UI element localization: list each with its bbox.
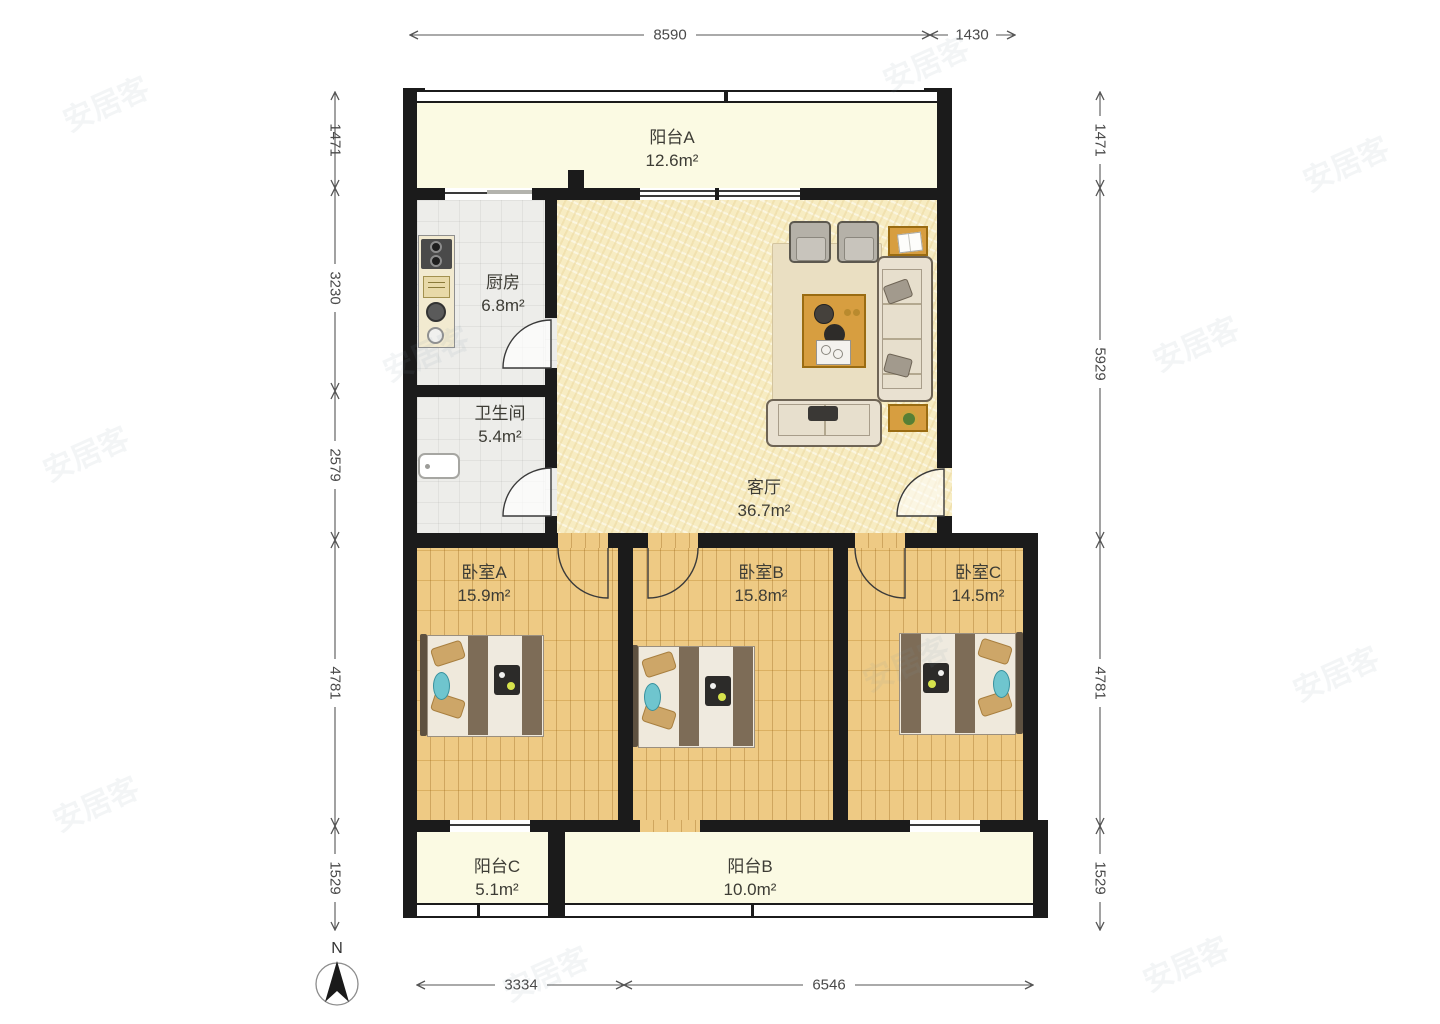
room-name: 阳台B <box>727 857 772 876</box>
side-table <box>888 226 928 256</box>
compass-circle <box>316 963 358 1005</box>
vase <box>814 304 834 324</box>
tray <box>808 406 838 421</box>
watermark: 安居客 <box>45 764 145 841</box>
wall-segment <box>1033 820 1048 918</box>
bedroom-c-door-threshold <box>855 533 905 548</box>
wall-segment <box>698 533 855 548</box>
armchair <box>837 221 879 263</box>
tea-tray <box>816 340 851 365</box>
wall-segment <box>700 820 910 832</box>
balcony-b-window <box>565 903 1033 918</box>
coffee-table <box>802 294 866 368</box>
cutting-board <box>423 276 450 298</box>
floor-plan: 阳台A 12.6m² 厨房 6.8m² 卫生间 5.4m² 客厅 36.7m² … <box>0 0 1440 1024</box>
bed-tray <box>494 665 520 695</box>
kitchen-window <box>445 192 487 194</box>
dimension-label: 1471 <box>327 123 344 156</box>
bathtub <box>418 453 460 479</box>
wall-segment <box>545 368 557 468</box>
wall-segment <box>937 88 952 468</box>
north-label: N <box>331 940 343 957</box>
dimension-label: 3230 <box>327 271 344 304</box>
bathroom-door-threshold <box>545 468 557 516</box>
bed-bedroom-a <box>420 632 545 738</box>
wall-segment <box>417 385 557 397</box>
watermark: 安居客 <box>1135 924 1235 1001</box>
wall-segment <box>905 533 1038 548</box>
wall-segment <box>403 533 558 548</box>
balcony-a-window <box>417 90 937 103</box>
window-mullion <box>715 188 719 200</box>
watermark: 安居客 <box>495 934 595 1011</box>
room-label-living: 客厅 36.7m² <box>738 476 791 522</box>
dimension-label: 1529 <box>327 861 344 894</box>
room-label-balcony-c: 阳台C 5.1m² <box>474 855 520 901</box>
room-label-bedroom-b: 卧室B 15.8m² <box>735 561 788 607</box>
bed-tray <box>705 676 731 706</box>
room-label-balcony-a: 阳台A 12.6m² <box>646 126 699 172</box>
north-arrow-icon <box>325 961 349 1002</box>
dimension-label: 1471 <box>1092 123 1109 156</box>
book <box>897 232 923 254</box>
accent-pillow <box>993 670 1010 698</box>
wall-segment <box>980 820 1038 832</box>
dimension-label: 4781 <box>1092 666 1109 699</box>
side-table <box>888 404 928 432</box>
room-area: 6.8m² <box>481 296 524 315</box>
wall-segment <box>530 820 640 832</box>
room-name: 卧室B <box>738 563 783 582</box>
dimension-label: 5929 <box>1092 347 1109 380</box>
room-area: 12.6m² <box>646 151 699 170</box>
bedroom-a-balcony-window <box>450 824 530 826</box>
window-mullion <box>477 903 480 918</box>
room-label-bedroom-c: 卧室C 14.5m² <box>952 561 1005 607</box>
living-balcony-window <box>640 195 800 197</box>
wall-segment <box>568 170 584 200</box>
room-area: 5.4m² <box>478 427 521 446</box>
sofa <box>877 256 933 402</box>
living-balcony-window <box>640 190 800 192</box>
room-name: 阳台C <box>474 857 520 876</box>
bedroom-a-door-threshold <box>558 533 608 548</box>
balcony-b-floor <box>565 832 1033 903</box>
wall-segment <box>532 188 640 200</box>
dimension-label: 4781 <box>327 666 344 699</box>
parapet <box>487 190 532 194</box>
dimension-label: 1529 <box>1092 861 1109 894</box>
dimension-label: 6546 <box>812 977 845 994</box>
watermark: 安居客 <box>35 414 135 491</box>
room-area: 15.8m² <box>735 586 788 605</box>
armchair <box>789 221 831 263</box>
window-mullion <box>751 903 754 918</box>
room-area: 5.1m² <box>475 880 518 899</box>
bed-bedroom-b <box>631 643 756 749</box>
watermark: 安居客 <box>1295 124 1395 201</box>
wall-segment <box>833 533 848 832</box>
potted-plant <box>900 410 918 428</box>
window-mullion <box>724 90 728 103</box>
accent-pillow <box>433 672 450 700</box>
wall-segment <box>800 188 952 200</box>
balcony-c-window <box>417 903 548 918</box>
watermark: 安居客 <box>55 64 155 141</box>
bedroom-c-balcony-window <box>910 824 980 826</box>
room-label-bathroom: 卫生间 5.4m² <box>475 402 526 448</box>
kitchen-door-threshold <box>545 318 557 368</box>
wall-segment <box>545 200 557 318</box>
room-name: 卧室A <box>461 563 506 582</box>
wall-segment <box>403 88 417 918</box>
bedroom-b-door-threshold <box>648 533 698 548</box>
room-name: 厨房 <box>486 273 520 292</box>
wall-segment <box>403 188 445 200</box>
dimension-label: 2579 <box>327 448 344 481</box>
watermark: 安居客 <box>1145 304 1245 381</box>
room-name: 阳台A <box>649 128 694 147</box>
room-label-kitchen: 厨房 6.8m² <box>481 271 524 317</box>
watermark: 安居客 <box>1285 634 1385 711</box>
wall-segment <box>1023 533 1038 832</box>
room-name: 客厅 <box>747 478 781 497</box>
wall-segment <box>618 533 633 832</box>
entry-door-threshold <box>937 468 952 516</box>
wall-segment <box>403 820 450 832</box>
room-area: 15.9m² <box>458 586 511 605</box>
wall-segment <box>548 820 565 918</box>
room-label-bedroom-a: 卧室A 15.9m² <box>458 561 511 607</box>
stove <box>421 239 452 269</box>
room-name: 卫生间 <box>475 404 526 423</box>
balcony-b-passage <box>640 820 700 832</box>
room-area: 10.0m² <box>724 880 777 899</box>
accent-pillow <box>644 683 661 711</box>
room-area: 14.5m² <box>952 586 1005 605</box>
room-name: 卧室C <box>955 563 1001 582</box>
room-label-balcony-b: 阳台B 10.0m² <box>724 855 777 901</box>
dimension-label: 8590 <box>653 27 686 44</box>
north-compass: N <box>316 940 358 1005</box>
loveseat <box>766 399 882 447</box>
room-area: 36.7m² <box>738 501 791 520</box>
